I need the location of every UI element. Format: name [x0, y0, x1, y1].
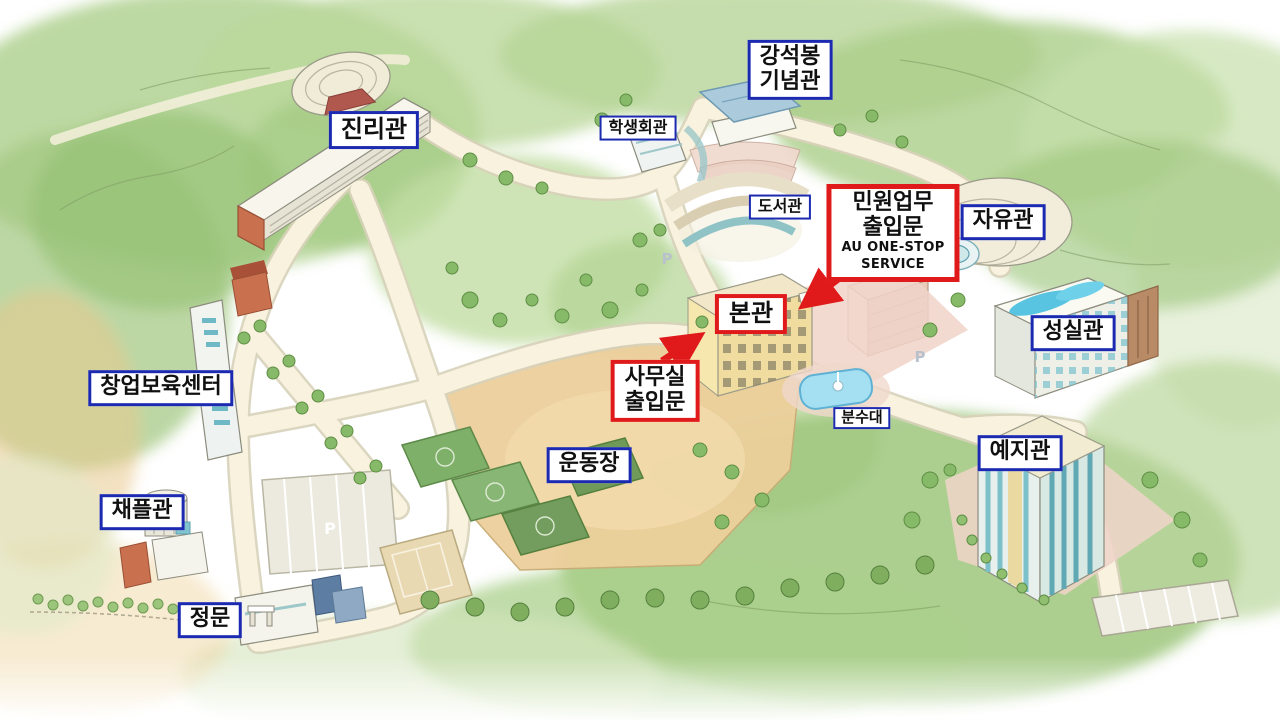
label-yejigwan: 예지관 — [978, 435, 1063, 471]
label-office-entrance: 사무실 출입문 — [611, 360, 700, 422]
label-undongjang: 운동장 — [547, 447, 632, 483]
campus-map: P — [0, 0, 1280, 720]
label-gangseokbong-memorial: 강석봉 기념관 — [748, 40, 833, 100]
label-haksaenghoegwan: 학생회관 — [600, 116, 677, 141]
label-bongwan: 본관 — [715, 294, 787, 334]
label-onestop-service-entrance: 민원업무 출입문 AU ONE-STOP SERVICE — [826, 184, 959, 282]
label-jayugwan: 자유관 — [961, 204, 1046, 240]
label-chaepeulgwan: 채플관 — [100, 494, 185, 530]
parking-lot-center: P — [262, 470, 398, 574]
parking-marker: P — [915, 348, 926, 366]
label-jinrigwan: 진리관 — [329, 111, 419, 149]
parking-marker: P — [324, 519, 336, 538]
label-doseogwan: 도서관 — [749, 195, 811, 220]
label-changeop-center: 창업보육센터 — [88, 370, 233, 406]
label-jeongmun: 정문 — [178, 602, 242, 638]
label-bunsudae: 분수대 — [833, 407, 890, 429]
label-seongsilgwan: 성실관 — [1031, 315, 1116, 351]
bottom-fade — [0, 655, 1280, 720]
parking-marker: P — [662, 250, 673, 268]
